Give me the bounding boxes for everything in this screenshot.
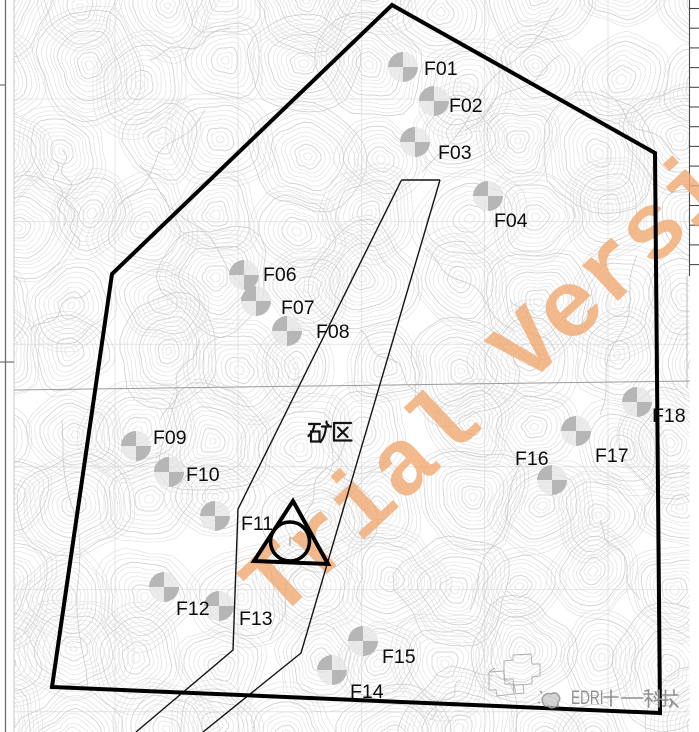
svg-text:F03: F03	[438, 142, 472, 164]
svg-text:F12: F12	[176, 598, 210, 620]
svg-text:F17: F17	[595, 445, 629, 467]
svg-text:F14: F14	[350, 681, 384, 703]
svg-text:F07: F07	[281, 297, 315, 319]
svg-text:F18: F18	[652, 405, 686, 427]
svg-text:F13: F13	[239, 608, 273, 630]
svg-text:F16: F16	[515, 448, 549, 470]
svg-text:F02: F02	[449, 95, 483, 117]
svg-text:F10: F10	[186, 464, 220, 486]
svg-text:F01: F01	[424, 58, 458, 80]
svg-text:F06: F06	[263, 264, 297, 286]
svg-text:F04: F04	[494, 210, 528, 232]
svg-text:F09: F09	[153, 427, 187, 449]
svg-text:EDRI: EDRI	[571, 688, 604, 709]
svg-text:F08: F08	[316, 321, 350, 343]
svg-text:F11: F11	[241, 513, 273, 535]
svg-text:F15: F15	[382, 646, 416, 668]
